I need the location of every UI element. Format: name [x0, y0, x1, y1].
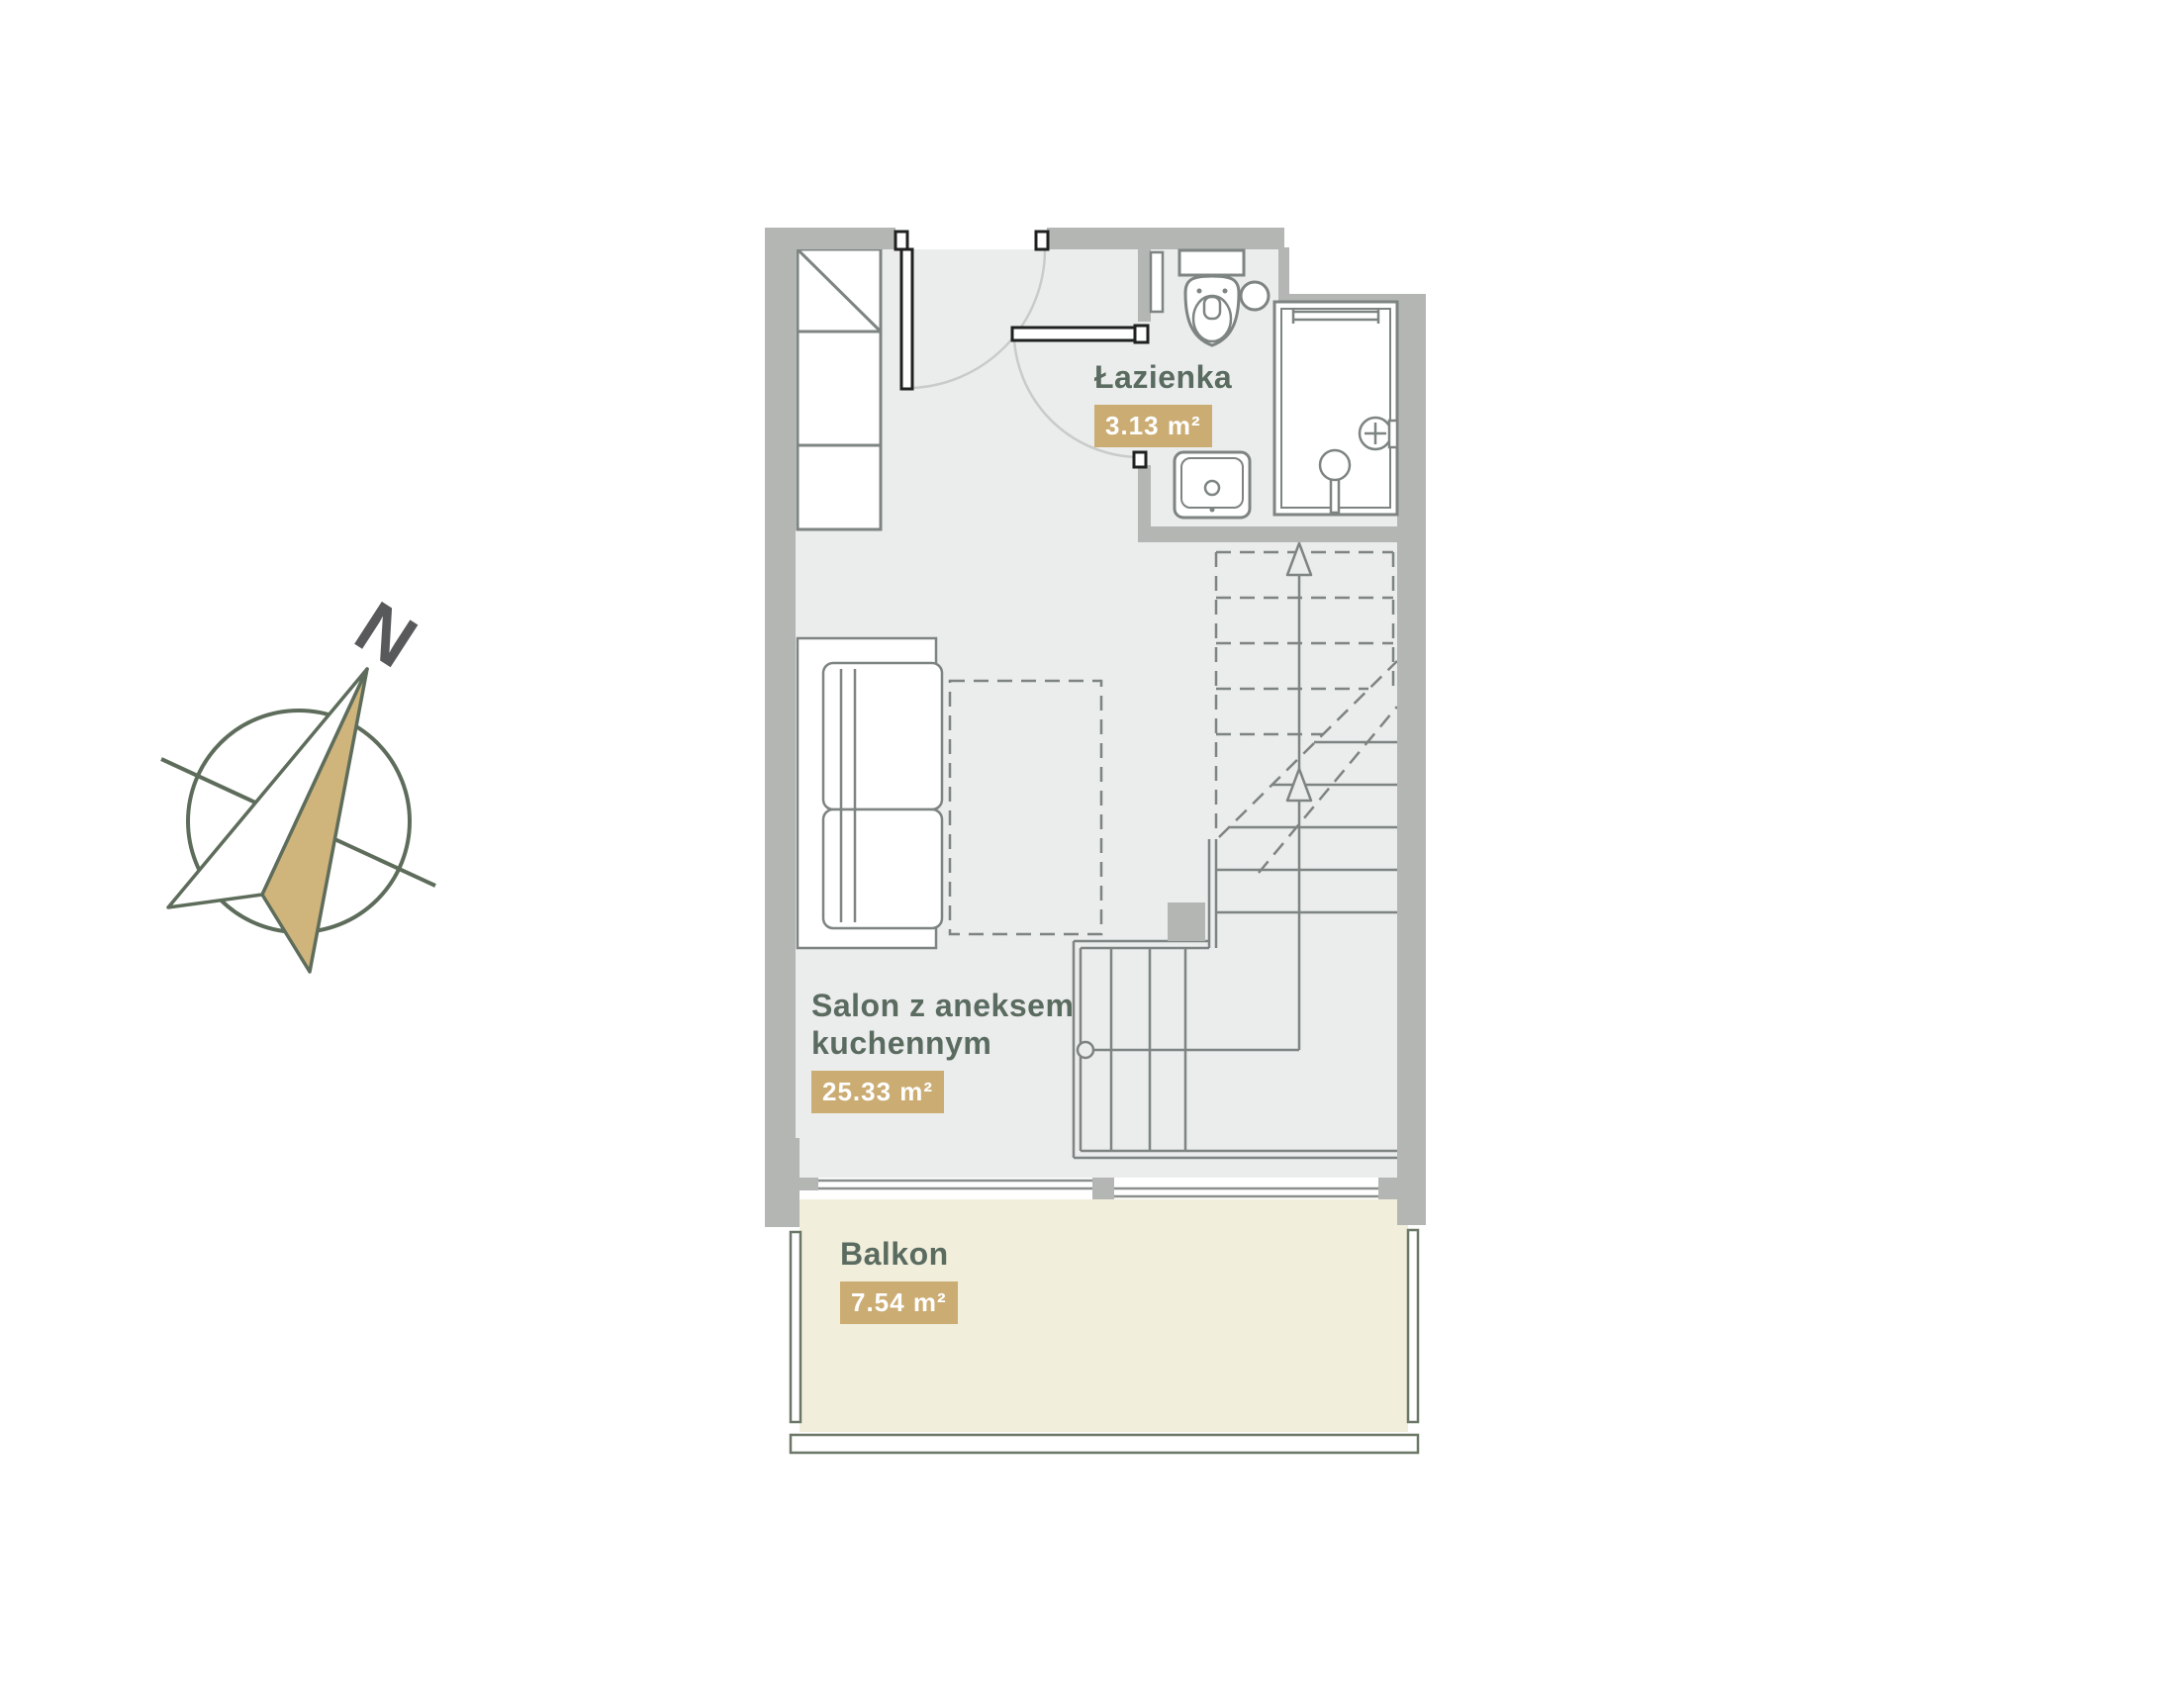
- balcony-slab: [791, 1435, 1418, 1453]
- area-badge: 3.13 m²: [1094, 405, 1212, 447]
- room-label-salon: Salon z aneksem kuchennym 25.33 m²: [811, 987, 1074, 1113]
- room-label-lazienka: Łazienka 3.13 m²: [1094, 358, 1232, 447]
- radiator: [1151, 252, 1163, 312]
- room-name-line2: kuchennym: [811, 1024, 1074, 1062]
- room-name: Łazienka: [1094, 358, 1232, 396]
- toilet-paper-holder: [1241, 282, 1269, 310]
- door-leaf: [901, 249, 912, 389]
- stairs-newel-post: [1078, 1042, 1093, 1058]
- railing-right: [1408, 1230, 1418, 1422]
- wall-bathroom-upper: [1138, 249, 1151, 322]
- compass-rose: N: [161, 586, 435, 972]
- compass-north-label: N: [341, 586, 430, 684]
- door-stop: [1036, 232, 1048, 249]
- wall-left-step: [800, 1178, 818, 1190]
- area-badge: 7.54 m²: [840, 1281, 958, 1324]
- wall-left-bottom-pier: [765, 1138, 800, 1227]
- wall-stairs-pier: [1168, 902, 1205, 941]
- wall-bathroom-bottom: [1138, 526, 1397, 542]
- shower-head-icon: [1360, 418, 1397, 449]
- wardrobe: [798, 249, 881, 529]
- sofa: [798, 638, 942, 948]
- room-name-line1: Salon z aneksem: [811, 987, 1074, 1024]
- toilet-cistern: [1179, 250, 1244, 275]
- door-stop: [1134, 452, 1146, 467]
- door-stop: [895, 232, 907, 249]
- floor-plan-drawing: N: [0, 0, 2165, 1708]
- room-name: Balkon: [840, 1235, 958, 1273]
- door-leaf: [1012, 328, 1135, 340]
- floor-plan-page: N Łazienka 3.13 m² Salon z aneksem kuche…: [0, 0, 2165, 1708]
- washbasin: [1175, 452, 1250, 518]
- railing-left: [791, 1232, 800, 1422]
- area-badge: 25.33 m²: [811, 1071, 944, 1113]
- wall-top-right: [1047, 228, 1284, 249]
- wall-left: [765, 228, 796, 1178]
- wall-window-right-pier: [1378, 1178, 1397, 1199]
- door-hinge-block: [1135, 326, 1148, 342]
- wall-right: [1397, 303, 1426, 1225]
- wall-window-mid-pier: [1092, 1178, 1114, 1199]
- room-label-balkon: Balkon 7.54 m²: [840, 1235, 958, 1324]
- shower: [1274, 302, 1397, 515]
